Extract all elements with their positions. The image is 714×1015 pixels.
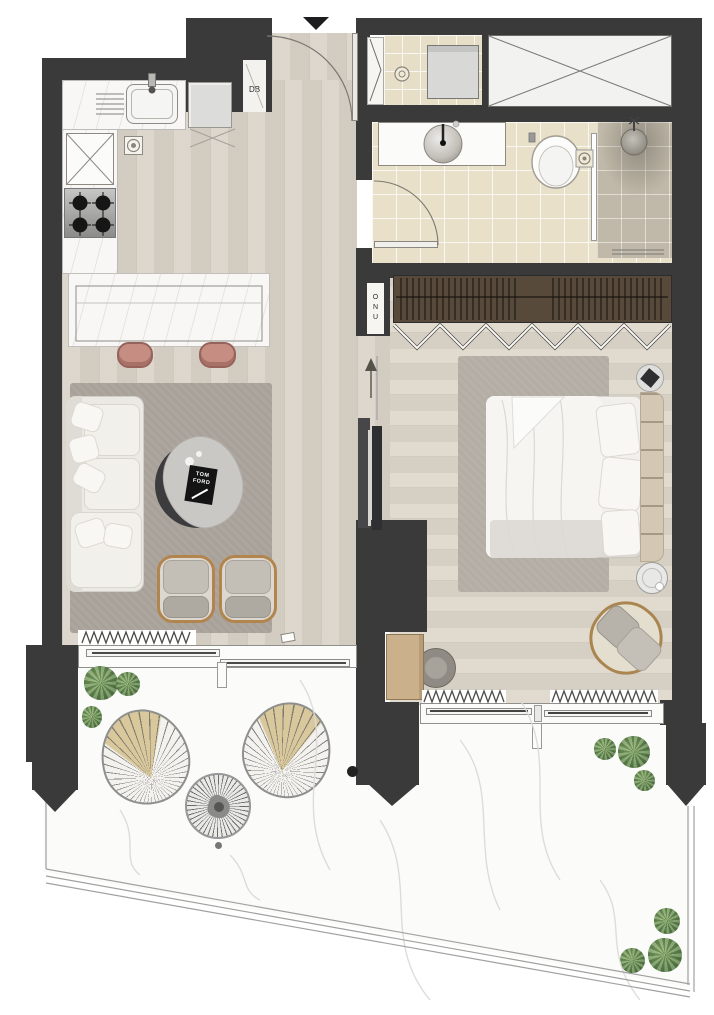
cooktop-burners bbox=[69, 192, 114, 236]
wall-chevron-middle bbox=[367, 783, 419, 806]
balcony-railing bbox=[46, 798, 694, 997]
wall-chevron-right bbox=[666, 783, 706, 806]
entry-direction-marker bbox=[303, 17, 329, 30]
shower-head bbox=[621, 129, 647, 155]
bifold-door-symbol bbox=[370, 39, 381, 101]
db-strip-diagonal bbox=[246, 64, 263, 108]
wall-chevron-left bbox=[32, 788, 78, 812]
entry-door-swing-arc bbox=[267, 36, 352, 121]
duvet-fold-corner bbox=[512, 397, 564, 448]
bathroom-door-swing-arc bbox=[374, 181, 438, 245]
bathroom-floor-drain-dot bbox=[583, 157, 587, 161]
floor-plan: DB ONU bbox=[0, 0, 714, 1015]
convector-zigzag bbox=[424, 691, 504, 702]
kitchen-floor-drain-inner bbox=[131, 143, 136, 148]
island-inner-edge bbox=[76, 286, 262, 341]
wardrobe-accordion-doors bbox=[394, 325, 670, 348]
marble-veins bbox=[120, 680, 640, 1000]
sink-drainer-lines bbox=[96, 94, 124, 114]
toilet-seat bbox=[539, 146, 573, 186]
convector-zigzag bbox=[552, 691, 656, 702]
vanity-faucet-dot bbox=[440, 140, 446, 146]
slide-arrow-head bbox=[365, 358, 377, 371]
toilet-flush bbox=[529, 133, 535, 142]
sink-faucet-dot bbox=[149, 87, 156, 94]
utility-floor-drain bbox=[395, 67, 409, 81]
soap-dispenser bbox=[453, 121, 459, 127]
convector-zigzag bbox=[82, 632, 190, 643]
plan-linework bbox=[0, 0, 714, 1015]
